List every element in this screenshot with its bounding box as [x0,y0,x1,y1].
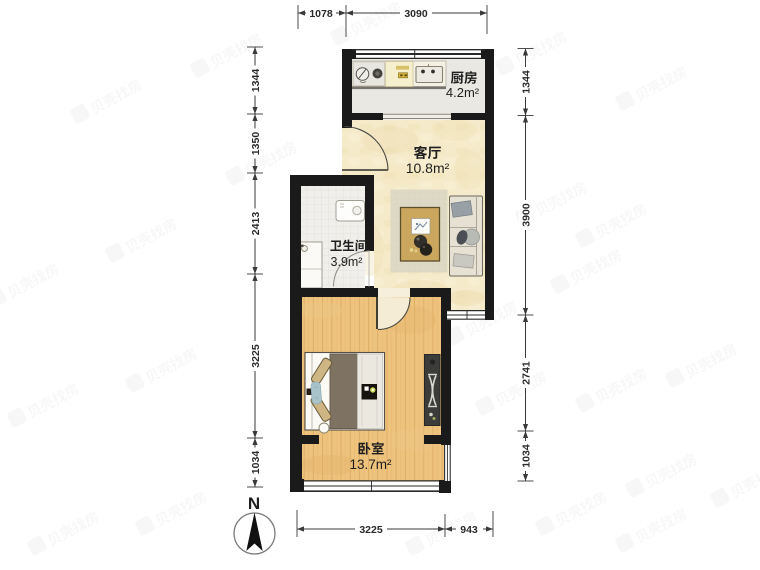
svg-text:3225: 3225 [359,524,383,536]
svg-text:943: 943 [460,524,478,536]
svg-text:1034: 1034 [520,444,532,468]
svg-text:13.7m²: 13.7m² [349,457,392,472]
svg-text:3225: 3225 [250,344,262,368]
svg-text:2741: 2741 [520,361,532,385]
svg-text:3.9m²: 3.9m² [331,255,363,269]
svg-text:10.8m²: 10.8m² [406,160,450,176]
svg-text:1350: 1350 [250,132,262,156]
svg-text:3090: 3090 [404,8,428,20]
svg-text:1034: 1034 [250,451,262,475]
svg-text:4.2m²: 4.2m² [446,85,480,100]
svg-text:1078: 1078 [309,8,333,20]
svg-text:1344: 1344 [520,70,532,94]
svg-text:2413: 2413 [250,212,262,236]
svg-text:1344: 1344 [250,69,262,93]
svg-text:3900: 3900 [520,203,532,227]
svg-text:N: N [248,494,260,513]
